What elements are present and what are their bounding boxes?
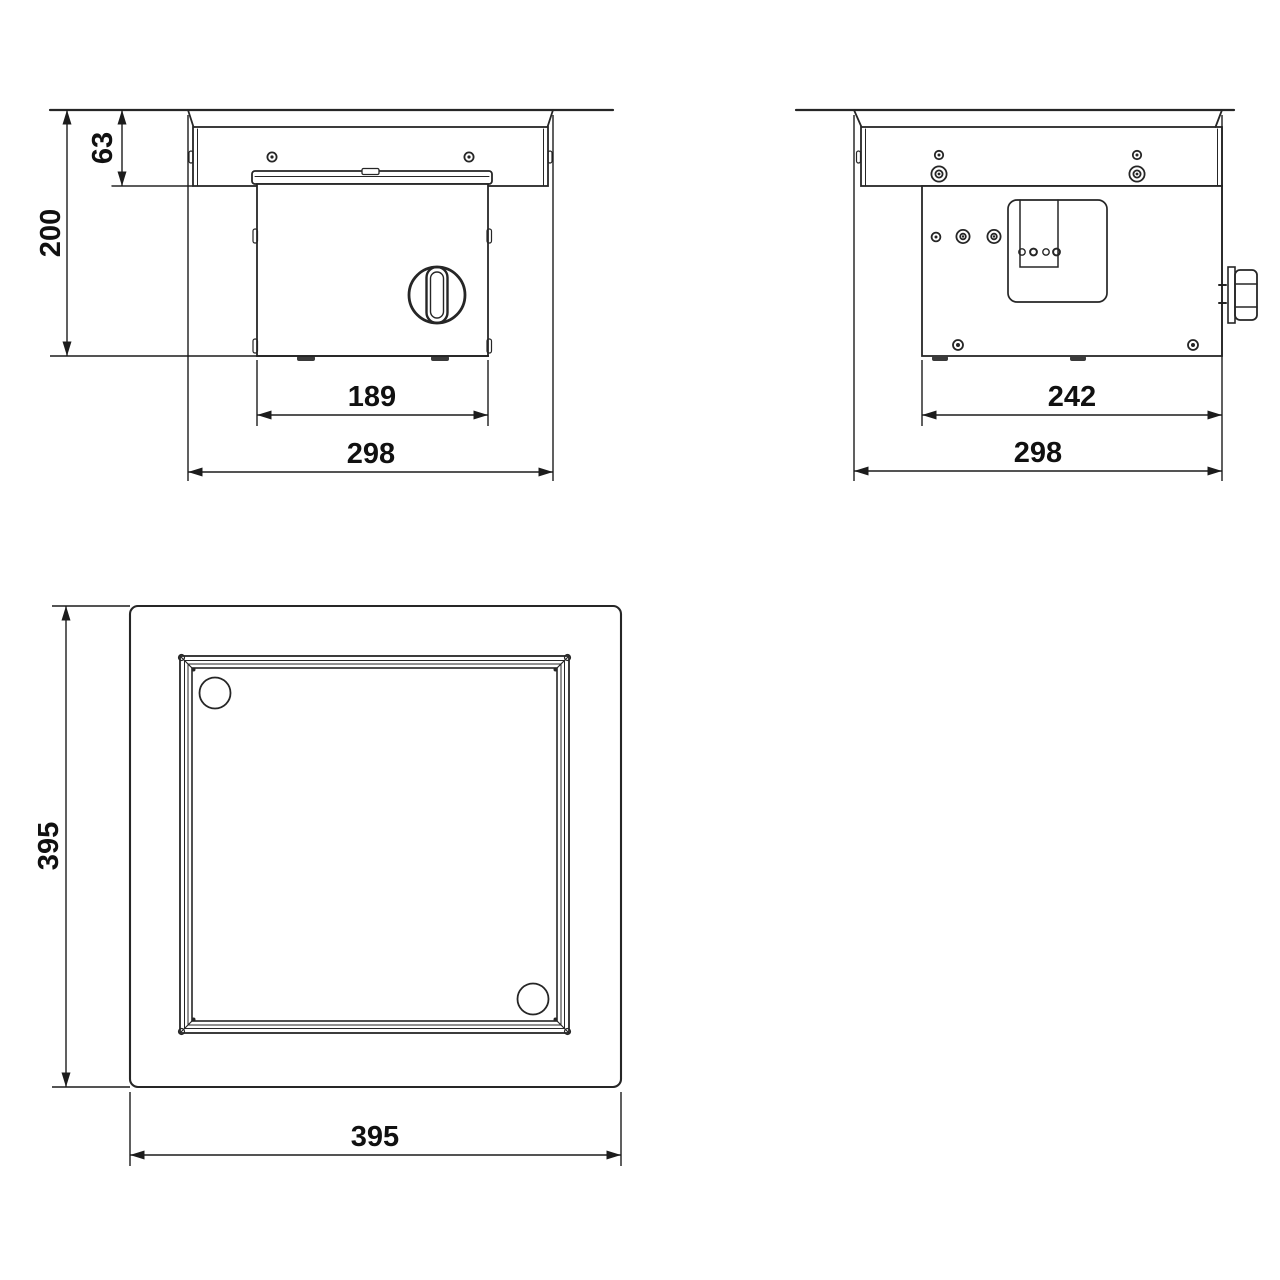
dimension-drawing: 200 63 189 298 — [0, 0, 1280, 1280]
body-foot-left — [932, 356, 948, 361]
dimension-label-body-width: 242 — [1048, 381, 1096, 413]
corner-dot — [554, 668, 558, 672]
body-foot-right — [1070, 356, 1086, 361]
dimension-label-cutout-width: 298 — [347, 438, 395, 470]
corner-dot — [192, 668, 196, 672]
dimension-label-recess-depth: 63 — [87, 132, 119, 164]
corner-dot — [554, 1018, 558, 1022]
device-body — [922, 186, 1222, 356]
dimension-label-overall-height: 395 — [33, 822, 65, 870]
device-body — [257, 184, 488, 356]
dimension-label-overall-width: 395 — [351, 1121, 399, 1153]
dimension-label-overall-depth: 200 — [35, 209, 67, 257]
dimension-label-body-width: 189 — [348, 381, 396, 413]
dimension-label-cutout-width: 298 — [1014, 437, 1062, 469]
body-foot-right — [431, 356, 449, 361]
body-foot-left — [297, 356, 315, 361]
drawing-page: 200 63 189 298 — [0, 0, 1280, 1280]
corner-dot — [192, 1018, 196, 1022]
lid-latch-notch — [362, 169, 379, 175]
